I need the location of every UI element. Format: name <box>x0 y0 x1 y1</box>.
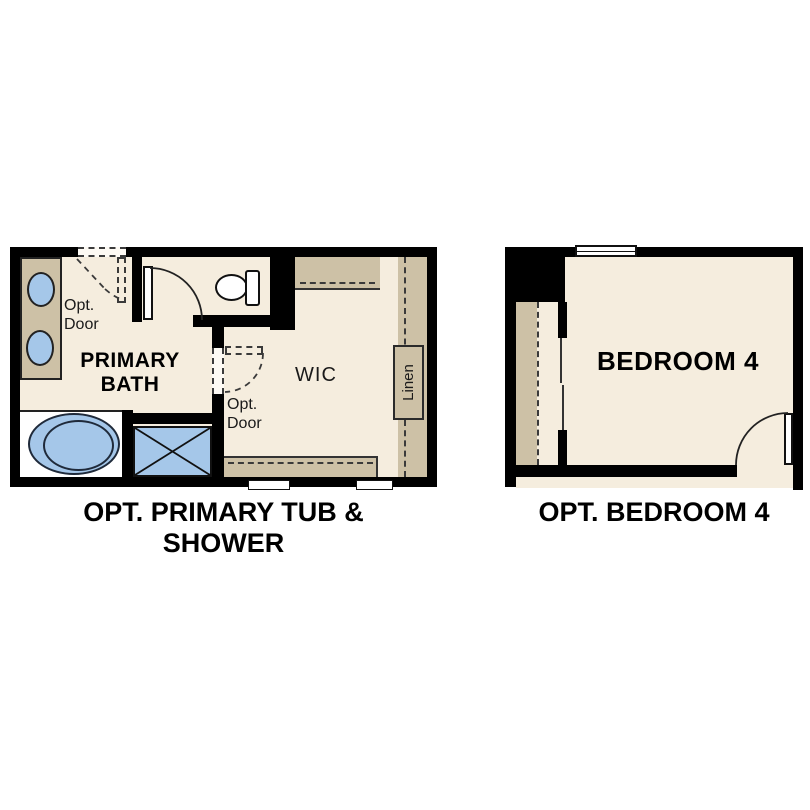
wic-top-shelf <box>295 257 380 290</box>
linen-cabinet: Linen <box>393 345 424 420</box>
opt-door-top-label: Opt. Door <box>64 296 99 334</box>
bath-wic-wall-lower <box>212 393 224 477</box>
closet-wall-lower <box>558 430 567 465</box>
bathtub-inner <box>43 420 114 471</box>
bedroom4-label: BEDROOM 4 <box>558 346 798 377</box>
linen-label: Linen <box>400 364 417 401</box>
shower-top-wall <box>123 413 214 424</box>
floorplan-bedroom4: BEDROOM 4 <box>505 245 803 490</box>
opt-door-wic-leaf <box>225 346 263 355</box>
floorplan-page: Linen Opt. Door PRIMARY BATH Opt. Door W… <box>0 0 810 810</box>
outer-wall-top <box>10 247 437 257</box>
wall-block <box>505 247 565 302</box>
opt-door-wic-opening <box>212 348 224 394</box>
wc-bottom-wall <box>193 315 277 327</box>
wall-block <box>270 257 295 330</box>
toilet-bowl <box>215 274 248 301</box>
bath-wic-wall-upper <box>212 327 224 349</box>
left-plan-caption: OPT. PRIMARY TUB & SHOWER <box>10 497 437 559</box>
sink <box>27 272 55 307</box>
floorplan-primary-bath: Linen Opt. Door PRIMARY BATH Opt. Door W… <box>10 247 437 487</box>
bedroom-door-leaf <box>784 413 793 465</box>
right-plan-caption: OPT. BEDROOM 4 <box>505 497 803 528</box>
closet-shelf <box>516 302 537 465</box>
window-mullion <box>577 251 635 252</box>
bottom-wall-opening-tab <box>248 480 290 490</box>
wic-bottom-shelf-rod <box>228 462 373 464</box>
closet-wall-upper <box>558 302 567 338</box>
opt-door-top-opening <box>78 247 126 257</box>
primary-bath-label: PRIMARY BATH <box>50 349 210 397</box>
shower <box>133 426 212 477</box>
closet-rod-dashline <box>537 302 539 465</box>
wic-bottom-shelf <box>224 456 378 477</box>
outer-wall-bottom <box>505 465 737 477</box>
window <box>575 245 637 257</box>
outer-wall-right <box>427 247 437 487</box>
wic-label: WIC <box>286 364 346 387</box>
opt-door-wic-label: Opt. Door <box>227 395 262 433</box>
outer-wall-left <box>10 247 20 487</box>
wic-top-shelf-rod <box>300 282 375 284</box>
closet-sliding-door <box>562 385 564 430</box>
bottom-wall-opening-tab <box>356 480 393 490</box>
wc-left-wall <box>132 257 142 322</box>
toilet-tank <box>245 270 260 306</box>
opt-door-top-leaf <box>117 257 126 303</box>
wc-door-leaf <box>143 266 153 320</box>
